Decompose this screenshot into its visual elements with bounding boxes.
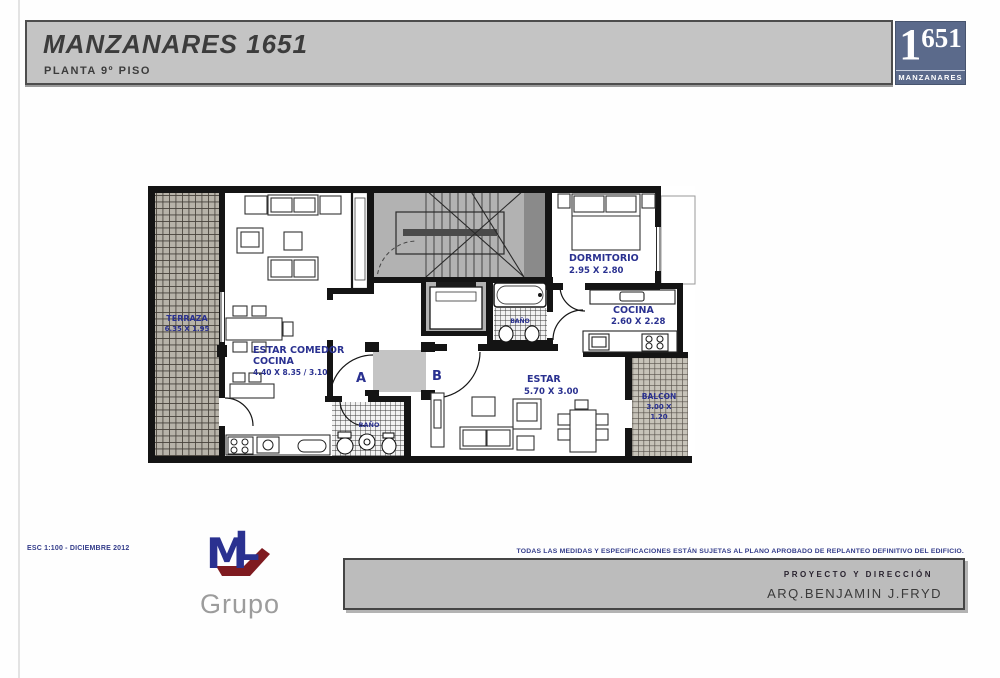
estar-comedor-label: ESTAR COMEDOR: [253, 345, 345, 356]
floor-plan-svg: TERRAZA 6.35 X 1.95 ESTAR COMEDOR COCINA…: [145, 180, 702, 470]
terraza-dims: 6.35 X 1.95: [165, 325, 210, 333]
floor-plan: TERRAZA 6.35 X 1.95 ESTAR COMEDOR COCINA…: [145, 180, 702, 470]
sheet-subtitle: PLANTA 9º PISO: [44, 65, 891, 77]
bath-a-label: BAÑO: [359, 420, 380, 429]
dormitorio-furniture: [558, 194, 655, 250]
balcon-dims-2: 1.20: [650, 413, 667, 421]
unit-a-marker: A: [356, 371, 366, 386]
credit-title: PROYECTO Y DIRECCIÓN: [345, 570, 933, 579]
title-block: MANZANARES 1651 PLANTA 9º PISO: [25, 20, 893, 85]
sheet-title: MANZANARES 1651: [43, 29, 891, 60]
brand-name: Grupo: [175, 589, 305, 620]
stair-rail: [403, 229, 497, 236]
building-number-rest: 651: [921, 25, 962, 50]
scale-date-note: ESC 1:100 - DICIEMBRE 2012: [27, 545, 129, 552]
estar-b-dims: 5.70 X 3.00: [524, 387, 579, 397]
terraza-label: TERRAZA: [166, 314, 208, 323]
architect-name: ARQ.BENJAMIN J.FRYD: [345, 586, 942, 601]
ml-grupo-logo: L M Grupo: [175, 520, 305, 620]
page-edge-line: [18, 0, 20, 678]
estar-b-label: ESTAR: [527, 374, 561, 385]
disclaimer-text: TODAS LAS MEDIDAS Y ESPECIFICACIONES EST…: [517, 548, 964, 555]
cocina-a-label: COCINA: [253, 356, 295, 367]
duct-strip: [524, 190, 545, 278]
bath-b-label: BAÑO: [510, 318, 529, 325]
building-number: 1 651: [896, 22, 965, 65]
unit-b-marker: B: [432, 369, 442, 384]
estar-comedor-dims: 4.40 X 8.35 / 3.10: [253, 368, 327, 377]
credit-block: PROYECTO Y DIRECCIÓN ARQ.BENJAMIN J.FRYD: [343, 558, 965, 610]
building-logo: 1 651 MANZANARES: [895, 21, 966, 85]
ml-mark-icon: L M: [204, 520, 276, 582]
balcon-dims-1: 3.00 X: [646, 403, 672, 411]
dormitorio-dims: 2.95 X 2.80: [569, 266, 624, 276]
ml-mark-m: M: [206, 529, 248, 578]
balcon-label: BALCON: [642, 392, 676, 401]
kitchen-a-counter: [226, 435, 330, 455]
palier-floor: [373, 350, 426, 392]
plan-sheet: MANZANARES 1651 PLANTA 9º PISO 1 651 MAN…: [0, 0, 1000, 678]
cocina-b-dims: 2.60 X 2.28: [611, 317, 666, 327]
elevator: [430, 281, 482, 329]
dormitorio-label: DORMITORIO: [569, 253, 639, 264]
building-name: MANZANARES: [896, 70, 965, 84]
building-number-big: 1: [899, 25, 921, 65]
hall-closet: [352, 192, 368, 289]
cocina-b-label: COCINA: [613, 305, 655, 316]
